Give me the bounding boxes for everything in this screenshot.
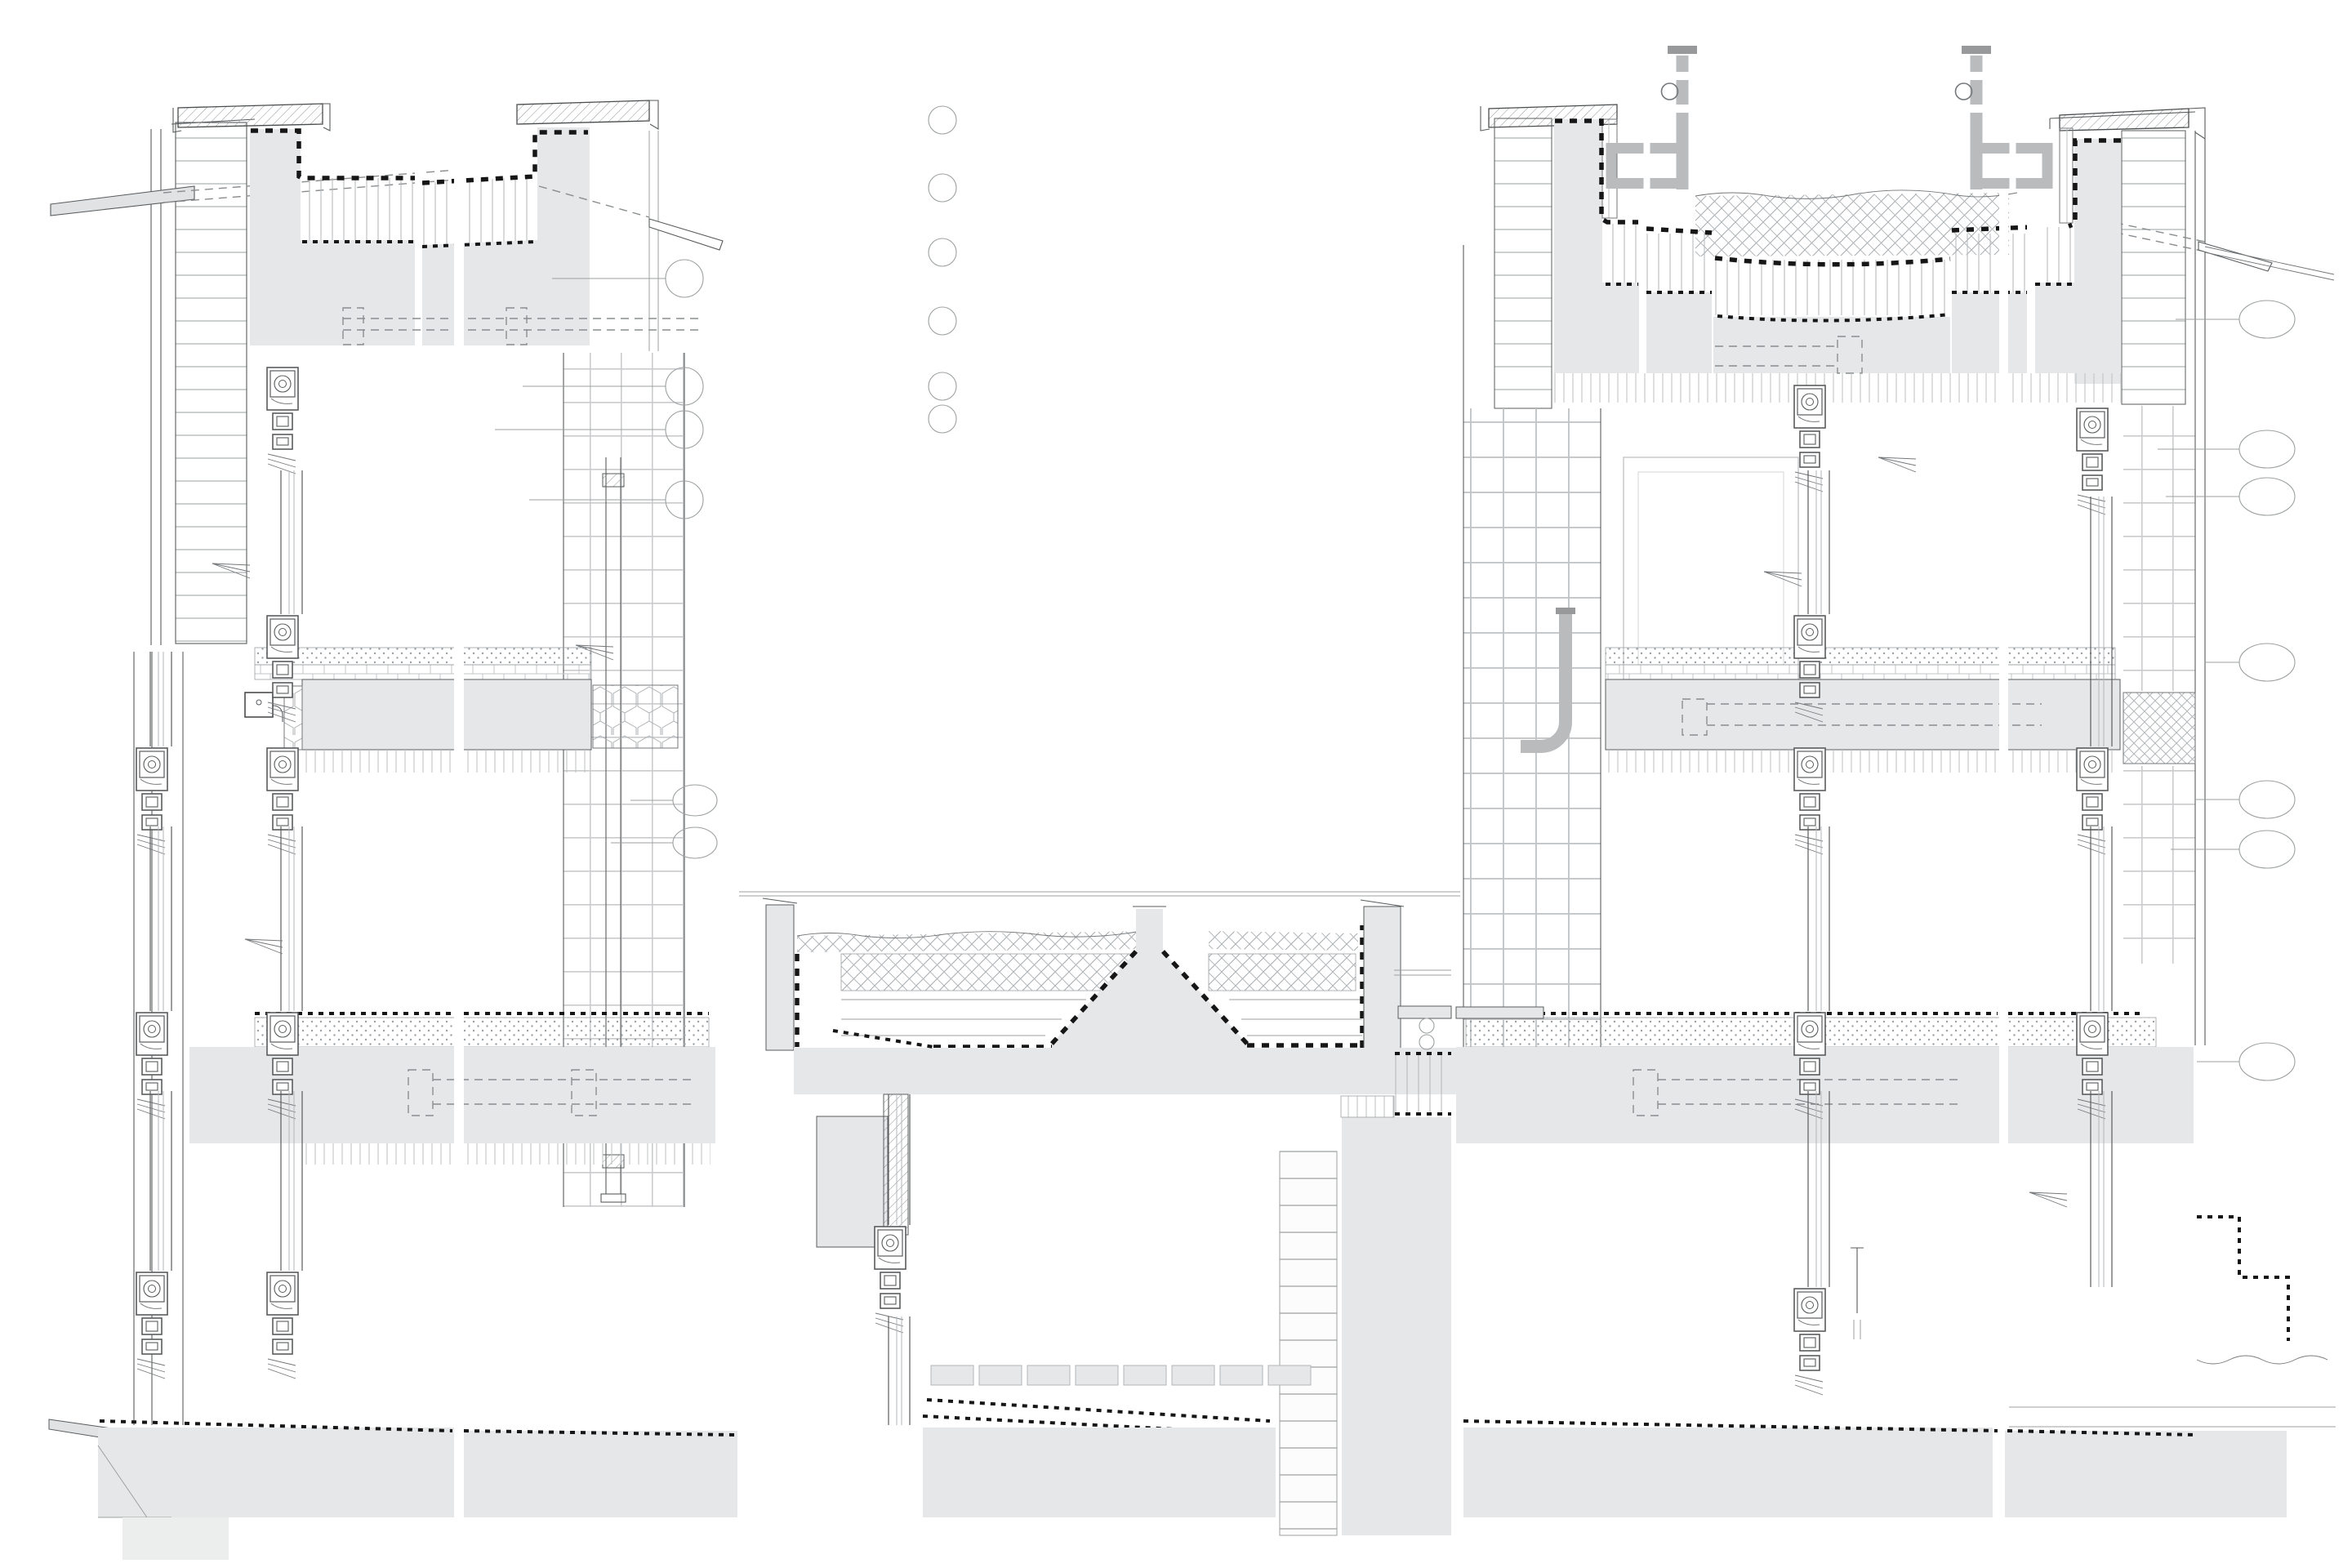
window-detail-cluster [136, 1013, 167, 1119]
callout-bubble [2239, 644, 2295, 681]
callout-bubble [929, 174, 956, 202]
callout-bubble [929, 372, 956, 400]
pipe-clamp [1956, 83, 1972, 100]
door-closer-symbol [1851, 1248, 1864, 1339]
section-break-left [454, 114, 464, 1527]
callout-bubble [2239, 831, 2295, 868]
window-detail-cluster [267, 367, 298, 474]
callout-bubble [929, 307, 956, 335]
paver-block [1076, 1365, 1118, 1385]
window-detail-cluster [1794, 748, 1825, 854]
left-roof-recess [250, 122, 702, 345]
pipe-sleeve-circle [1419, 1018, 1434, 1033]
leader-fan-line [245, 939, 283, 954]
paver-block [1124, 1365, 1166, 1385]
drawing-sheet [0, 0, 2352, 1568]
center-foundation [923, 1400, 1276, 1517]
paver-block [979, 1365, 1022, 1385]
leader-fan-line [1764, 572, 1802, 586]
paver-blocks [931, 1365, 1311, 1385]
callout-bubble [929, 405, 956, 433]
planter-right-wall [1361, 900, 1404, 1053]
callout-bubble [929, 106, 956, 134]
vent-pipe [1606, 46, 1698, 190]
pipe-sleeve-circle [1419, 1035, 1434, 1049]
level-break-lines [739, 892, 1460, 896]
window-detail-cluster [136, 1272, 167, 1379]
paver-block [1172, 1365, 1214, 1385]
callout-bubble [2239, 781, 2295, 818]
left-foundation [49, 1419, 737, 1560]
section-drawing [0, 0, 2352, 1568]
window-detail-cluster [267, 1272, 298, 1379]
paver-block [931, 1365, 973, 1385]
right-roof-recess [1554, 119, 2121, 403]
right-interior-lines [1624, 457, 1798, 679]
section-break-right [1999, 131, 2008, 1421]
roof-vent-pipes [1606, 46, 2053, 190]
callout-bubble [929, 238, 956, 266]
window-detail-cluster [1794, 1289, 1825, 1395]
callout-bubble [2239, 1043, 2295, 1080]
window-detail-cluster [2077, 748, 2108, 854]
window-detail-cluster [2077, 408, 2108, 514]
callout-bubble [2239, 478, 2295, 515]
right-foundation [1463, 1217, 2336, 1517]
leader-fan-line [2029, 1192, 2067, 1207]
window-detail-cluster [875, 1227, 906, 1333]
window-detail-clusters [136, 367, 2108, 1395]
stepped-wall [1280, 1151, 1337, 1535]
center-courtyard-section [739, 892, 1462, 1535]
paver-block [1220, 1365, 1263, 1385]
callout-bubble [2239, 430, 2295, 468]
paver-block [1027, 1365, 1070, 1385]
window-detail-cluster [136, 748, 167, 854]
paver-block [1268, 1365, 1311, 1385]
callout-bubble [2239, 301, 2295, 338]
pipe-clamp [1662, 83, 1678, 100]
right-tower-section [1456, 105, 2336, 1517]
leader-fan-line [1878, 457, 1916, 472]
callout-bubble [666, 260, 703, 297]
planter-left-wall [763, 898, 797, 1050]
window-detail-cluster [267, 748, 298, 854]
